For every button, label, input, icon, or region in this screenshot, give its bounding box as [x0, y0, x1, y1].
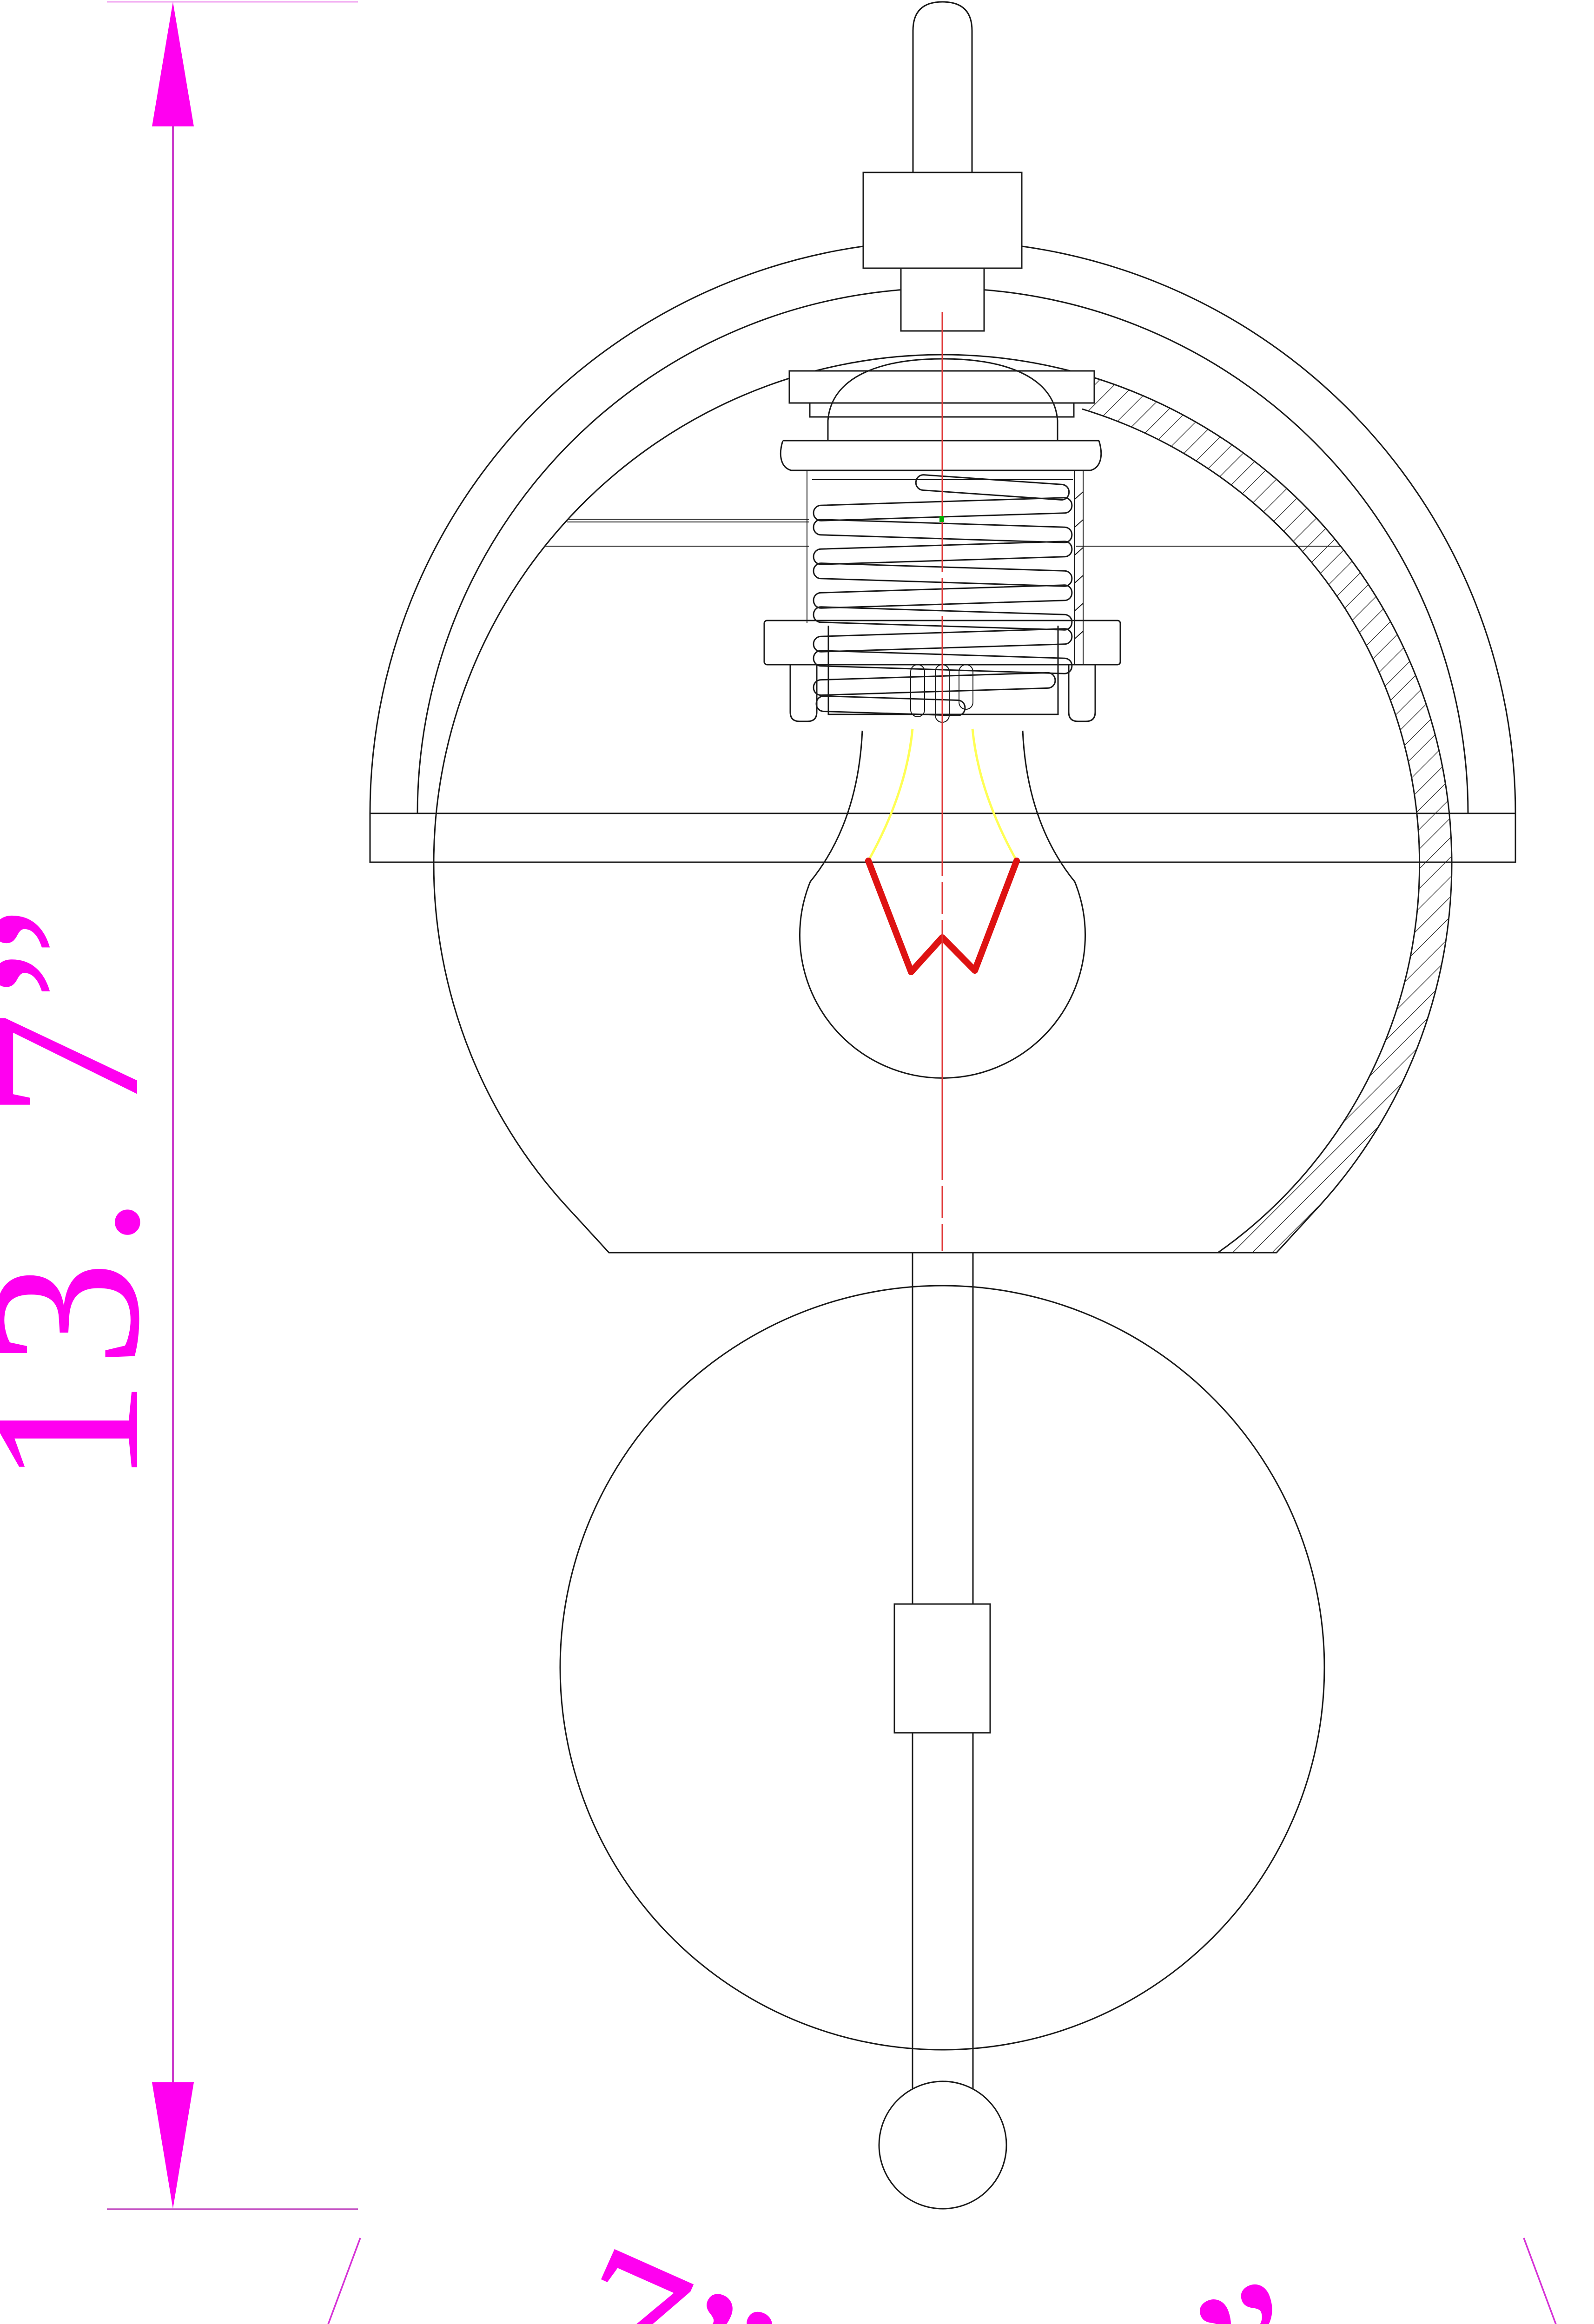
socket-prong — [911, 665, 925, 717]
width-left-dimension-label: 7” — [526, 2197, 807, 2324]
ball-finial — [879, 2081, 1006, 2209]
bulb-neck-right — [1023, 731, 1075, 882]
width-right-dimension-label: 9” — [1067, 2231, 1338, 2324]
datum-tick — [939, 516, 944, 522]
collar-tab-left — [790, 665, 817, 721]
arrowhead-down-icon — [152, 2082, 194, 2209]
socket-flange-curl — [780, 441, 1101, 470]
glass-wall-section-hatch — [1082, 377, 1452, 1253]
barrel-wall-hatch — [1074, 492, 1083, 639]
socket-flange — [783, 441, 1099, 470]
mount-strap-line — [567, 519, 809, 522]
mounting-block — [863, 172, 1022, 268]
witness-line-left — [292, 2238, 360, 2324]
collar-tab-right — [1069, 665, 1095, 721]
height-dimension: 13. 7” — [0, 2, 358, 2209]
height-dimension-label: 13. 7” — [0, 894, 184, 1486]
width-dimension-left: 7” — [292, 2197, 807, 2324]
width-dimension-right: 9” — [862, 2231, 1592, 2324]
bulb-neck-left — [810, 731, 862, 882]
technical-drawing-page: 13. 7” 7” 9” — [0, 0, 1594, 2324]
wall-sconce-drawing: 13. 7” 7” 9” — [0, 0, 1594, 2324]
rod-center-block — [894, 1604, 990, 1733]
witness-line-right — [1524, 2238, 1592, 2324]
arrowhead-up-icon — [152, 2, 194, 126]
top-stem — [913, 2, 972, 172]
